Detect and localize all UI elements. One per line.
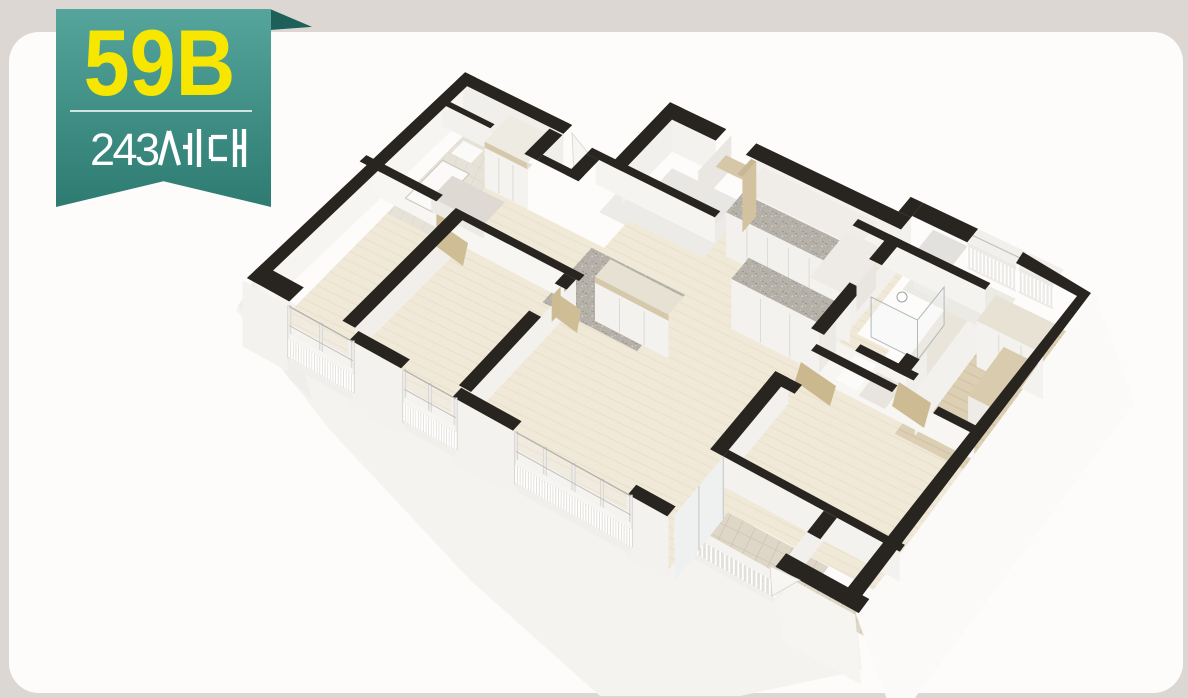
svg-text:243: 243 [90, 124, 160, 175]
